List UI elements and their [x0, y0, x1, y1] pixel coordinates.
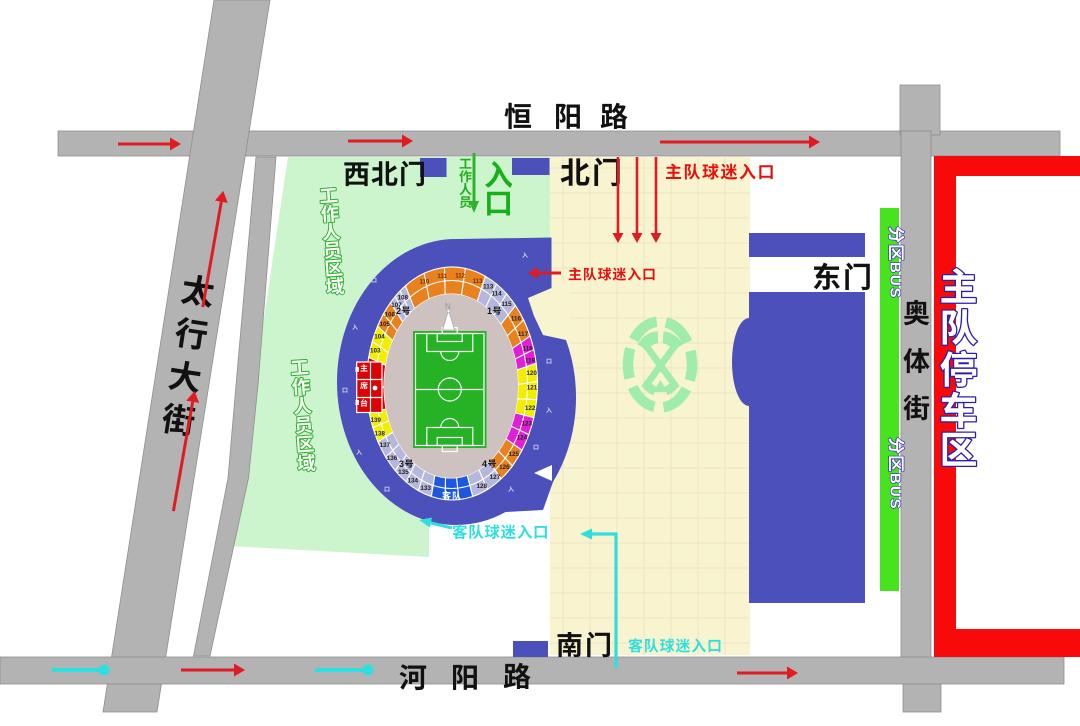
svg-text:139: 139 [371, 417, 382, 424]
svg-text:126: 126 [499, 464, 510, 471]
svg-text:114: 114 [492, 291, 503, 298]
svg-text:127: 127 [490, 474, 501, 481]
svg-text:122: 122 [525, 405, 536, 412]
svg-text:112: 112 [455, 274, 465, 280]
svg-text:110: 110 [420, 280, 430, 286]
svg-text:BUS: BUS [887, 473, 904, 511]
svg-text:105: 105 [379, 321, 390, 328]
svg-text:125: 125 [508, 451, 519, 458]
svg-text:4: 4 [482, 459, 487, 469]
svg-text:3: 3 [399, 459, 404, 469]
svg-text:138: 138 [375, 430, 386, 437]
svg-text:111: 111 [437, 274, 447, 280]
svg-text:123: 123 [521, 421, 532, 428]
svg-text:117: 117 [518, 331, 529, 338]
svg-text:121: 121 [527, 384, 538, 391]
svg-text:120: 120 [526, 370, 537, 377]
svg-text:135: 135 [398, 469, 409, 476]
svg-text:106: 106 [384, 312, 395, 319]
svg-text:N: N [445, 302, 451, 311]
svg-text:124: 124 [517, 435, 528, 442]
svg-text:133: 133 [420, 485, 431, 492]
svg-text:136: 136 [387, 455, 398, 462]
svg-text:108: 108 [398, 294, 409, 301]
svg-text:134: 134 [408, 477, 419, 484]
svg-text:137: 137 [379, 442, 390, 449]
svg-text:128: 128 [477, 483, 488, 490]
svg-text:103: 103 [370, 348, 381, 355]
svg-text:115: 115 [501, 301, 512, 308]
svg-text:104: 104 [374, 333, 385, 340]
svg-text:116: 116 [511, 315, 522, 322]
svg-text:113: 113 [473, 279, 483, 285]
svg-text:107: 107 [391, 302, 402, 309]
svg-text:119: 119 [525, 358, 536, 365]
svg-text:1: 1 [487, 306, 492, 316]
svg-text:BUS: BUS [887, 262, 904, 300]
svg-text:118: 118 [523, 346, 534, 353]
